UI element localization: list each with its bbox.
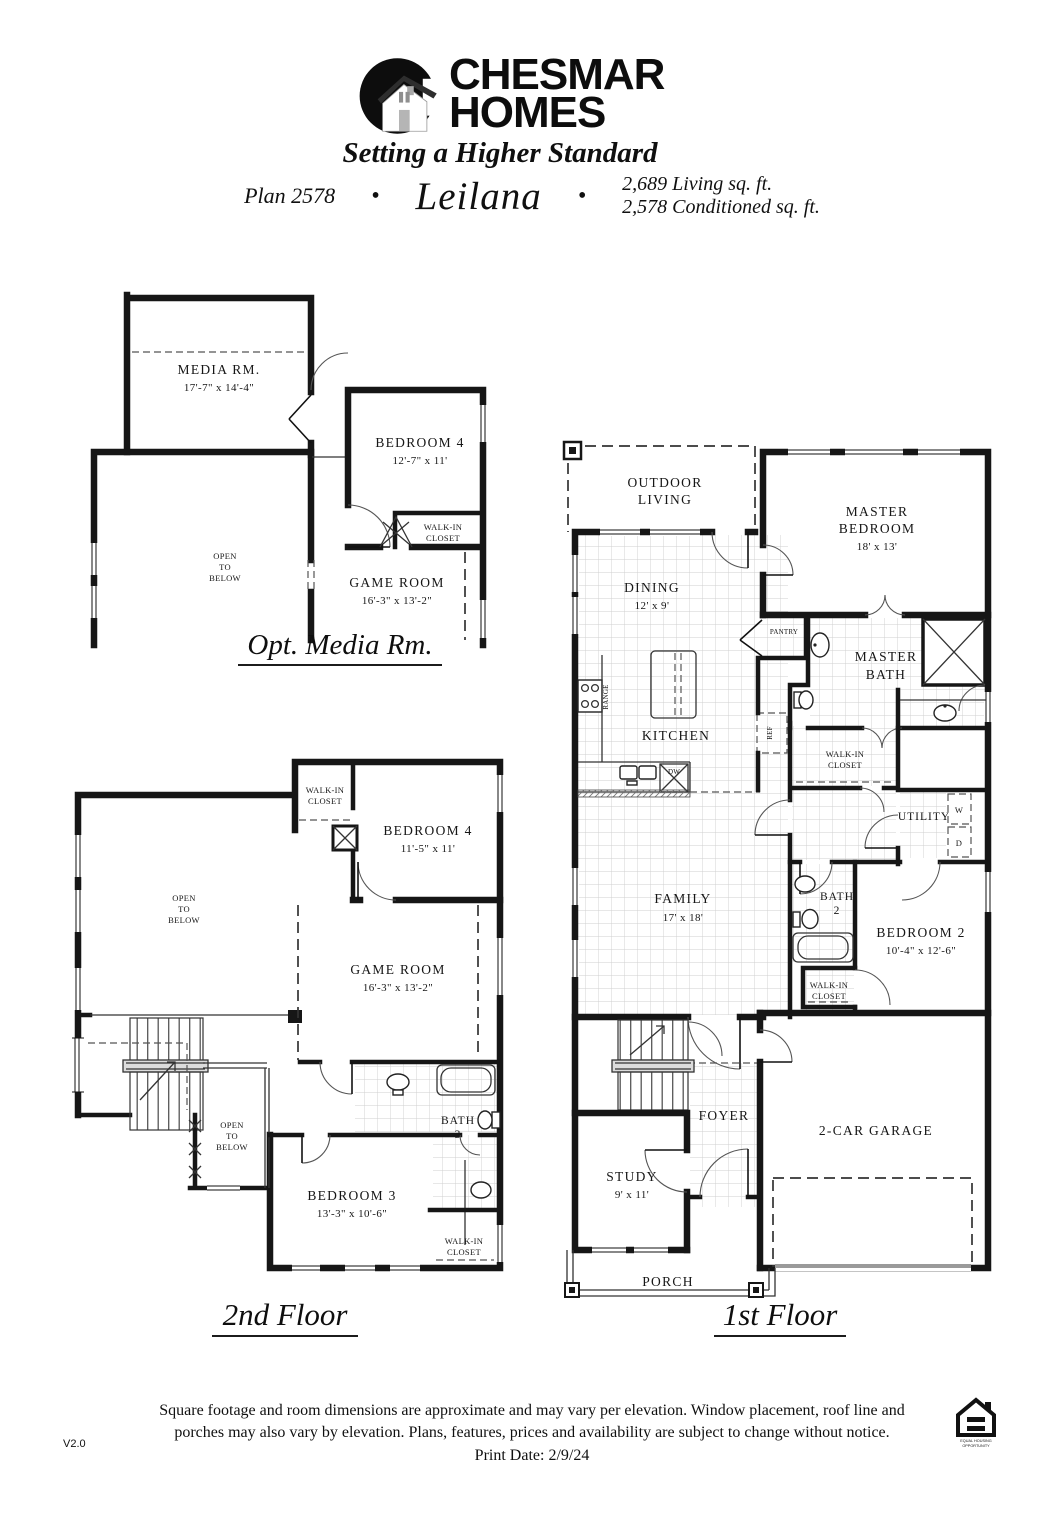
second-floor-plan: WALK-IN CLOSET BEDROOM 4 11'-5" x 11' OP… [60,750,520,1300]
toilet-icon [794,691,813,709]
opt-media-floorplan: MEDIA RM. 17'-7" x 14'-4" BEDROOM 4 12'-… [60,285,500,650]
walls-opt-media [89,295,487,645]
room-label-bedroom4: BEDROOM 4 [375,435,464,450]
room-label-master-bath: MASTER [855,649,918,664]
brand-line2: HOMES [449,94,664,132]
room-label-kitchen: KITCHEN [642,728,710,743]
shower-icon [923,619,985,685]
room-dims-gameroom: 16'-3" x 13'-2" [362,595,432,607]
room-label-foyer: FOYER [699,1108,750,1123]
room-label-study: STUDY [606,1169,658,1184]
open-below-label: BELOW [209,573,241,583]
tagline: Setting a Higher Standard [290,137,710,170]
range-label: RANGE [602,684,610,709]
room-label-dining: DINING [624,580,680,595]
floorplan-sheet: CHESMAR HOMES Setting a Higher Standard … [0,0,1064,1536]
room-label-pantry: PANTRY [770,628,798,636]
equal-housing-opportunity-icon: EQUAL HOUSING OPPORTUNITY [954,1395,998,1449]
room-dims-bedroom3: 13'-3" x 10'-6" [317,1208,387,1220]
room-label-bath2: BATH [820,891,854,903]
room-label-master-bedroom: MASTER [846,504,909,519]
room-label-outdoor-living: OUTDOOR [627,475,702,490]
sink-icon [471,1182,491,1198]
room-label-media: MEDIA RM. [178,362,261,377]
range-icon [578,680,602,712]
washer-label: W [955,805,963,815]
conditioned-sqft: 2,578 Conditioned sq. ft. [622,196,820,219]
sink-icon [795,876,815,892]
plan-name: Leilana [416,174,542,219]
square-footage: 2,689 Living sq. ft. 2,578 Conditioned s… [622,173,820,219]
closet-label: WALK-IN [445,1236,483,1246]
room-label-garage: 2-CAR GARAGE [819,1123,933,1138]
room-label-bedroom4: BEDROOM 4 [383,823,472,838]
open-below-label: BELOW [168,915,200,925]
room-label-gameroom: GAME ROOM [350,962,445,977]
room-label-bedroom3: BEDROOM 3 [307,1188,396,1203]
sink-icon [811,633,829,657]
room-labels-opt-media: MEDIA RM. 17'-7" x 14'-4" BEDROOM 4 12'-… [178,362,465,607]
version-label: V2.0 [63,1438,86,1450]
room-label-gameroom: GAME ROOM [349,575,444,590]
closet-label: CLOSET [308,796,342,806]
staircase [612,1020,694,1110]
ref-label: REF [766,726,774,739]
first-floor-plan: OUTDOOR LIVING MASTER BEDROOM 18' x 13' … [555,435,1000,1305]
closet-label: WALK-IN [424,522,462,532]
room-label-outdoor-living: LIVING [638,492,692,507]
open-below-label: TO [219,562,231,572]
bullet-separator: • [578,183,586,210]
closet-label: WALK-IN [826,749,864,759]
eho-text: OPPORTUNITY [962,1444,990,1448]
room-dims-bedroom2: 10'-4" x 12'-6" [886,945,956,957]
room-label-utility: UTILITY [898,811,950,823]
toilet-icon [793,910,818,929]
room-dims-master-bedroom: 18' x 13' [857,541,898,553]
room-label-family: FAMILY [654,891,711,906]
eho-text: EQUAL HOUSING [960,1439,992,1443]
bullet-separator: • [371,183,379,210]
header: CHESMAR HOMES [358,55,664,137]
living-sqft: 2,689 Living sq. ft. [622,173,820,196]
second-floor-title: 2nd Floor [212,1297,358,1337]
plan-info-line: Plan 2578 • Leilana • 2,689 Living sq. f… [0,173,1064,219]
brand-name: CHESMAR HOMES [449,56,664,132]
room-label-bath2-number: 2 [834,905,841,917]
closet-label: CLOSET [828,760,862,770]
room-label-bath3: BATH [441,1115,475,1127]
room-label-porch: PORCH [642,1274,694,1289]
disclaimer-line1: Square footage and room dimensions are a… [0,1402,1064,1420]
first-floor-title: 1st Floor [714,1297,846,1337]
sink-icon [934,704,956,721]
disclaimer-line2: porches may also vary by elevation. Plan… [0,1424,1064,1442]
room-dims-media: 17'-7" x 14'-4" [184,382,254,394]
plan-number: Plan 2578 [244,183,335,209]
room-label-bath3-number: 3 [455,1129,462,1141]
closet-label: CLOSET [812,991,846,1001]
opt-media-title: Opt. Media Rm. [238,629,442,666]
open-below-label: BELOW [216,1142,248,1152]
room-dims-bedroom4: 11'-5" x 11' [401,843,456,855]
chesmar-home-logo-icon [358,55,440,137]
room-label-master-bath: BATH [866,667,906,682]
room-dims-family: 17' x 18' [663,912,704,924]
room-dims-dining: 12' x 9' [635,600,670,612]
closet-label: CLOSET [447,1247,481,1257]
dw-label: DW [668,768,680,776]
toilet-icon [478,1111,500,1129]
room-dims-study: 9' x 11' [615,1189,649,1201]
dryer-label: D [956,838,962,848]
closet-label: CLOSET [426,533,460,543]
closet-label: WALK-IN [810,980,848,990]
print-date: Print Date: 2/9/24 [0,1447,1064,1465]
room-dims-bedroom4: 12'-7" x 11' [392,455,447,467]
open-below-label: TO [178,904,190,914]
room-label-bedroom2: BEDROOM 2 [876,925,965,940]
room-dims-gameroom: 16'-3" x 13'-2" [363,982,433,994]
closet-label: WALK-IN [306,785,344,795]
room-label-master-bedroom: BEDROOM [839,521,916,536]
window-icon [292,1264,420,1272]
open-below-label: OPEN [213,551,236,561]
open-below-label: OPEN [172,893,195,903]
open-below-label: OPEN [220,1120,243,1130]
open-below-label: TO [226,1131,238,1141]
